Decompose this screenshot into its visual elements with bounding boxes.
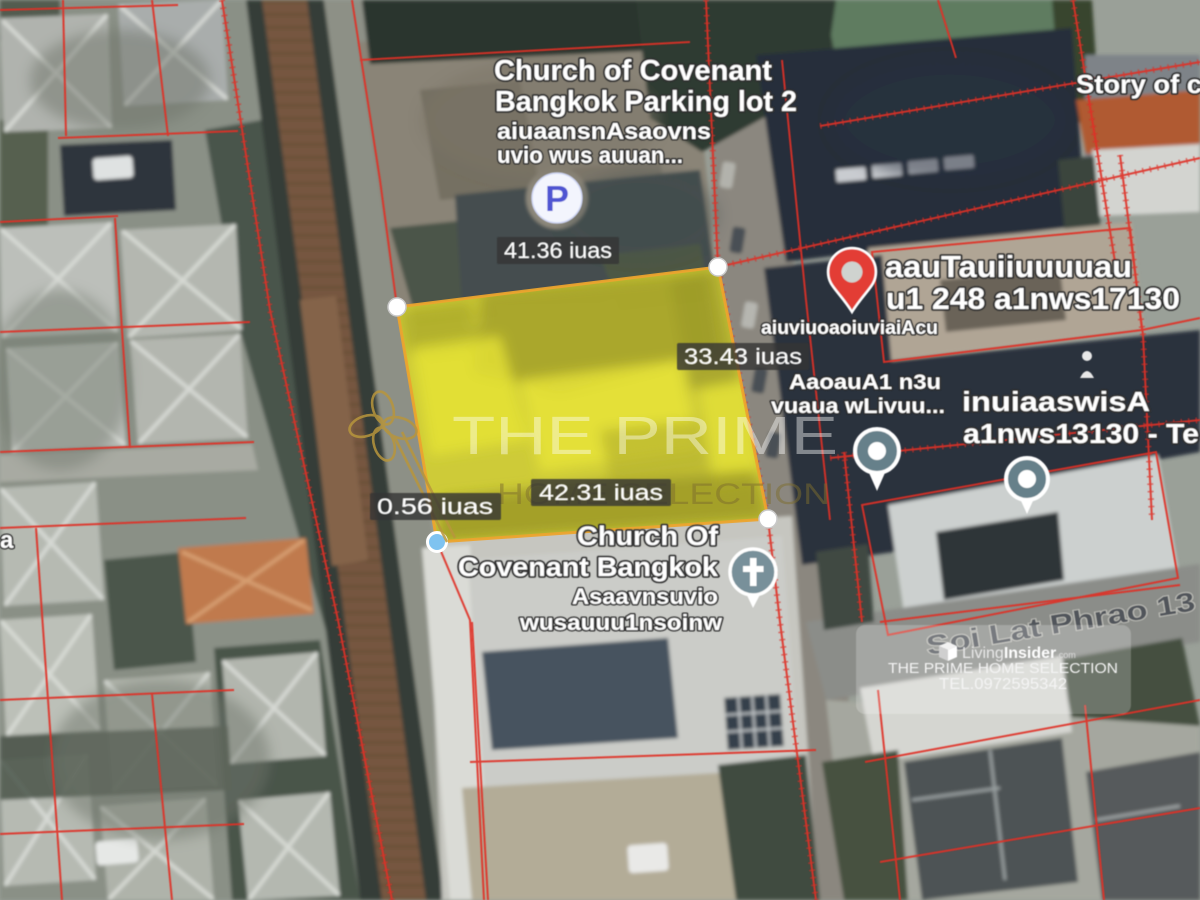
svg-text:a: a	[0, 527, 14, 554]
svg-text:0.56 iuas: 0.56 iuas	[377, 494, 493, 519]
svg-text:Bangkok Parking lot 2: Bangkok Parking lot 2	[495, 86, 797, 118]
svg-text:inuiaaswisA: inuiaaswisA	[962, 386, 1150, 417]
svg-text:42.31 iuas: 42.31 iuas	[539, 480, 663, 505]
svg-text:P: P	[545, 178, 569, 219]
svg-text:aauTauiiuuuuau: aauTauiiuuuuau	[885, 249, 1132, 284]
svg-text:uvio wus auuan...: uvio wus auuan...	[497, 142, 683, 168]
svg-text:33.43 iuas: 33.43 iuas	[684, 344, 802, 369]
svg-text:TEL.0972595342: TEL.0972595342	[939, 676, 1067, 693]
svg-text:Covenant Bangkok: Covenant Bangkok	[458, 552, 719, 582]
svg-text:aiuaansnAsaovns: aiuaansnAsaovns	[497, 118, 711, 144]
svg-text:vuaua wLivuu...: vuaua wLivuu...	[771, 395, 945, 418]
svg-text:AaoauA1 n3u: AaoauA1 n3u	[789, 371, 941, 394]
svg-text:u1 248 a1nws17130: u1 248 a1nws17130	[886, 281, 1180, 316]
svg-text:Church of Covenant: Church of Covenant	[494, 55, 772, 87]
svg-text:Asaavnsuvio: Asaavnsuvio	[572, 584, 718, 609]
svg-text:41.36 iuas: 41.36 iuas	[504, 238, 612, 263]
svg-text:aiuviuoaoiuviaiAcu: aiuviuoaoiuviaiAcu	[761, 318, 938, 339]
svg-text:a1nws13130 - Te: a1nws13130 - Te	[963, 418, 1199, 449]
svg-text:Story of c: Story of c	[1076, 69, 1200, 99]
svg-text:THE PRIME HOME SELECTION: THE PRIME HOME SELECTION	[888, 661, 1118, 677]
svg-text:wusauuu1nsoinw: wusauuu1nsoinw	[519, 610, 723, 635]
svg-text:Church Of: Church Of	[577, 521, 719, 551]
